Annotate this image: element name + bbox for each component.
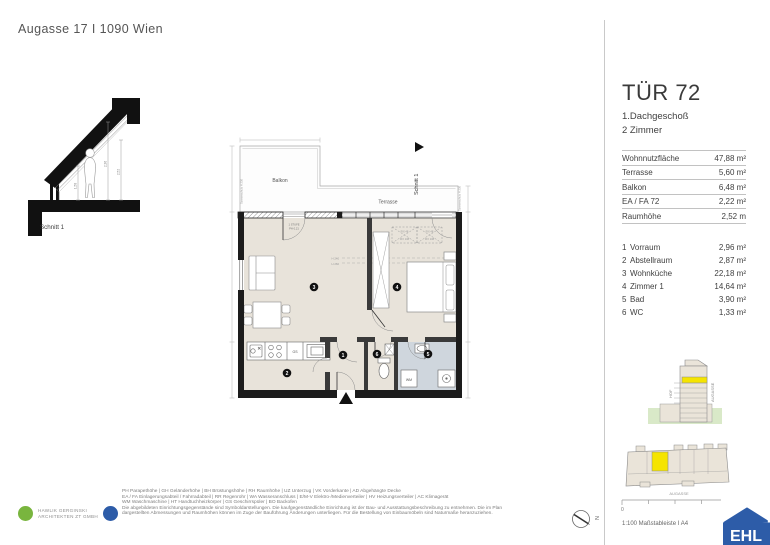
- floor-plan: H 240 H 260 GS: [225, 132, 475, 417]
- room-badge-6: 6: [376, 352, 379, 358]
- metric-row: EA / FA 722,22 m²: [622, 194, 746, 209]
- scale-label: 1:100 Maßstableiste I A4: [622, 521, 689, 527]
- room-area: 2,87 m²: [719, 256, 746, 265]
- unit-room-count: 2 Zimmer: [622, 125, 746, 136]
- metric-value: 2,52 m: [722, 212, 746, 221]
- metric-value: 6,48 m²: [719, 183, 746, 192]
- unit-panel: TÜR 72 1.Dachgeschoß 2 Zimmer Wohnnutzfl…: [622, 80, 746, 319]
- step-note-line1: 1 STUFE: [288, 223, 299, 227]
- ehl-logo: EHL: [721, 505, 770, 545]
- room-row: 4Zimmer 114,64 m²: [622, 280, 746, 293]
- metric-value: 2,22 m²: [719, 197, 746, 206]
- kitchen-counter: [247, 342, 330, 360]
- room-row: 1Vorraum2,96 m²: [622, 241, 746, 254]
- bed: [407, 252, 456, 322]
- entrance-arrow-icon: [339, 392, 353, 404]
- wardrobe: [373, 232, 389, 308]
- sink-icon: [250, 345, 262, 357]
- highlighted-unit: [652, 452, 668, 471]
- disclaimer-line-2: dargestellten Abmessungen und Raumhöhen …: [122, 511, 592, 517]
- metric-row: Balkon6,48 m²: [622, 179, 746, 194]
- architect-logo: HAWLIK GERGINSKI ARCHITEKTEN ZT GMBH: [18, 506, 118, 521]
- room-no: 2: [622, 256, 630, 265]
- room-name: Abstellraum: [630, 256, 719, 265]
- room-no: 5: [622, 295, 630, 304]
- room-no: 6: [622, 308, 630, 317]
- metric-row: Wohnnutzfläche47,88 m²: [622, 150, 746, 165]
- metric-row: Raumhöhe2,52 m: [622, 208, 746, 224]
- ehl-logo-text: EHL: [730, 528, 762, 545]
- sun-protection-left: Sonnenschutz H 230: [240, 179, 244, 204]
- parapet-hatch-wall: [238, 212, 342, 218]
- key-elevation: HOF AUGASSE: [648, 360, 722, 424]
- north-arrow-icon: N: [569, 506, 601, 534]
- room-name: Zimmer 1: [630, 282, 714, 291]
- section-marker-arrow-icon: [415, 142, 424, 152]
- sun-protection-right: Sonnenschutz H 230: [458, 186, 462, 211]
- metric-label: Balkon: [622, 183, 646, 192]
- section-dim-right: 2,52: [117, 169, 121, 175]
- key-plan: HOF AUGASSE AUGASSE: [622, 356, 748, 498]
- sofa: [249, 256, 275, 290]
- hof-label: HOF: [668, 389, 673, 398]
- metric-label: EA / FA 72: [622, 197, 659, 206]
- skylight-label-2a: FIX 48: [426, 230, 434, 234]
- room-badge-2: 2: [286, 371, 289, 377]
- height-line-label-1: H 240: [332, 257, 340, 261]
- room-name: Vorraum: [630, 243, 719, 252]
- room-no: 3: [622, 269, 630, 278]
- panel-divider: [604, 20, 605, 545]
- room-row: 5Bad3,90 m²: [622, 293, 746, 306]
- skylight-label-1b: FIX 138: [400, 237, 410, 241]
- architect-badge-blue-icon: [103, 506, 118, 521]
- section-dim-mid: 2,36: [104, 161, 108, 167]
- step-note-line2: PH 0,21: [289, 227, 299, 231]
- left-wall-window: [238, 260, 244, 290]
- room-row: 6WC1,33 m²: [622, 306, 746, 319]
- north-label: N: [593, 516, 599, 520]
- unit-floor: 1.Dachgeschoß: [622, 111, 746, 122]
- terrace-label: Terrasse: [378, 200, 397, 206]
- room-area: 14,64 m²: [714, 282, 746, 291]
- room-list: 1Vorraum2,96 m² 2Abstellraum2,87 m² 3Woh…: [622, 241, 746, 319]
- room-badge-5: 5: [427, 352, 430, 358]
- architect-badge-green-icon: [18, 506, 33, 521]
- metric-row: Terrasse5,60 m²: [622, 165, 746, 180]
- room-area: 2,96 m²: [719, 243, 746, 252]
- room-name: WC: [630, 308, 719, 317]
- dishwasher-label: GS: [292, 350, 298, 354]
- room-badge-1: 1: [342, 353, 345, 359]
- height-line-label-2: H 260: [332, 262, 340, 266]
- room-area: 1,33 m²: [719, 308, 746, 317]
- architect-subtitle: ARCHITEKTEN ZT GMBH: [38, 514, 98, 520]
- balcony-label: Balkon: [272, 178, 288, 184]
- room-badge-4: 4: [396, 285, 399, 291]
- metric-label: Raumhöhe: [622, 212, 661, 221]
- section-marker-label: Schnitt 1: [414, 174, 420, 195]
- key-site-plan: AUGASSE: [626, 444, 729, 496]
- highlighted-floor: [682, 377, 707, 383]
- window-band: [342, 212, 456, 218]
- room-no: 1: [622, 243, 630, 252]
- scale-zero-label: 0: [621, 507, 624, 513]
- room-row: 3Wohnküche22,18 m²: [622, 267, 746, 280]
- section-structure: [28, 98, 140, 236]
- section-label: Schnitt 1: [40, 224, 65, 231]
- section-drawing: 1,58 2,36 2,52 Schnitt 1: [28, 96, 148, 236]
- room-row: 2Abstellraum2,87 m²: [622, 254, 746, 267]
- skylight-label-1a: FIX 48: [401, 230, 409, 234]
- shower-icon: [438, 370, 455, 387]
- unit-title: TÜR 72: [622, 80, 746, 106]
- room-name: Wohnküche: [630, 269, 714, 278]
- page-title: Augasse 17 I 1090 Wien: [18, 22, 163, 36]
- toilet-icon: [378, 358, 390, 379]
- room-badge-3: 3: [313, 285, 316, 291]
- metric-label: Terrasse: [622, 168, 653, 177]
- room-name: Bad: [630, 295, 719, 304]
- legend-block: PH Parapethöhe | GH Geländerhöhe | BH Br…: [122, 489, 592, 517]
- washing-machine-label: WM: [406, 378, 412, 382]
- room-area: 3,90 m²: [719, 295, 746, 304]
- room-no: 4: [622, 282, 630, 291]
- metric-value: 5,60 m²: [719, 168, 746, 177]
- plan-sheet: Augasse 17 I 1090 Wien 1,: [0, 0, 770, 545]
- street-label-elevation: AUGASSE: [710, 382, 715, 402]
- metric-value: 47,88 m²: [714, 154, 746, 163]
- metric-label: Wohnnutzfläche: [622, 154, 679, 163]
- room-area: 22,18 m²: [714, 269, 746, 278]
- section-dim-left: 1,58: [74, 183, 78, 189]
- skylight-label-2b: FIX 138: [425, 237, 435, 241]
- unit-metrics-table: Wohnnutzfläche47,88 m² Terrasse5,60 m² B…: [622, 150, 746, 224]
